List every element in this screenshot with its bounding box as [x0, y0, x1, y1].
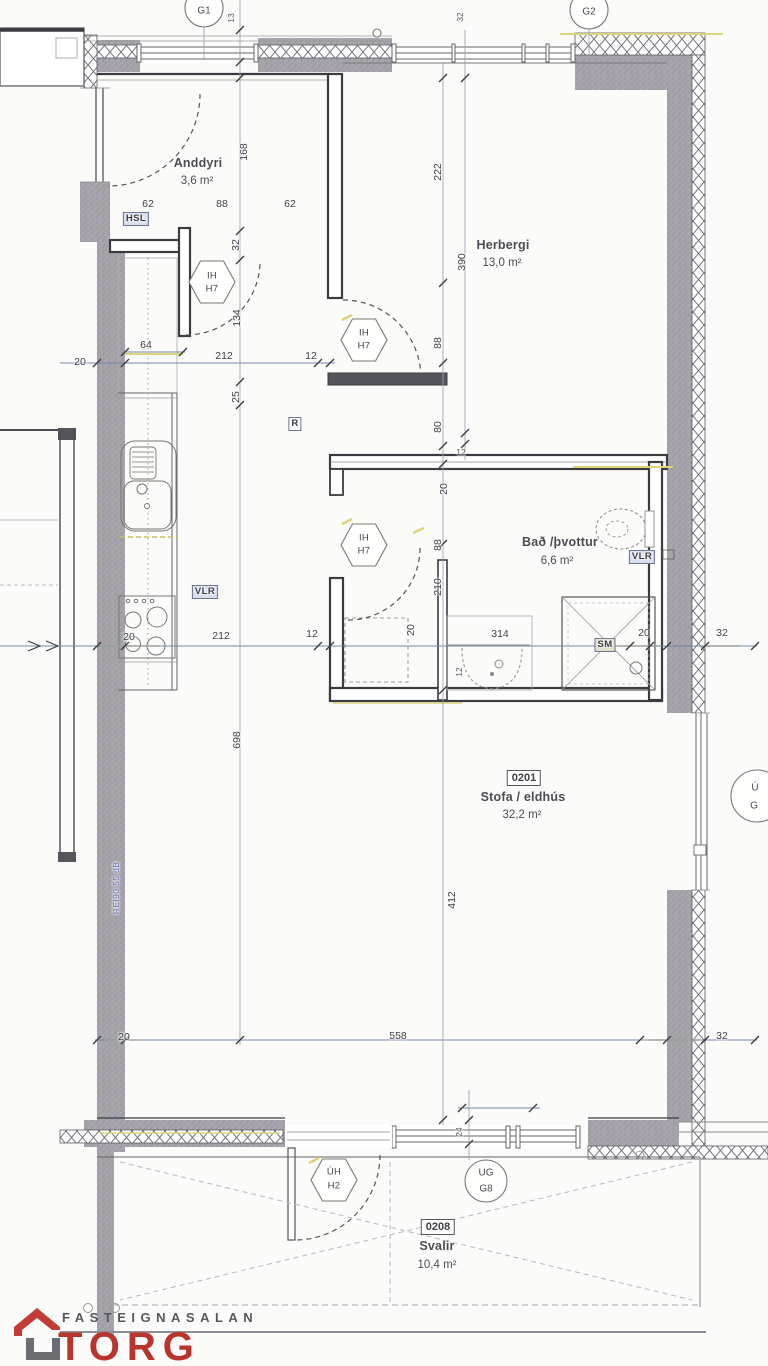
- unit-id-svalir: 0208: [421, 1219, 455, 1235]
- door-tag-text: H7: [358, 341, 371, 352]
- grid-label-g2: G2: [582, 7, 595, 18]
- dim-label: 20: [638, 627, 650, 639]
- dim-label: 64: [140, 339, 152, 351]
- window-tag-partial-text: G: [750, 801, 758, 812]
- dim-label: 13: [226, 13, 236, 22]
- dim-label: 12: [454, 667, 464, 676]
- bathroom-fixtures: [345, 509, 674, 690]
- wall-sound-rating-note: REI90 55 dB: [111, 862, 121, 915]
- washbasin: [447, 616, 532, 690]
- window-top-2: [392, 44, 575, 62]
- kitchen-sink: [121, 441, 176, 531]
- window-tag-text: G8: [479, 1184, 492, 1195]
- entry-door-arc: [108, 94, 200, 186]
- small-marker-circle: [373, 29, 381, 37]
- dim-label: 12: [456, 447, 465, 457]
- room-name-svalir: Svalir: [419, 1239, 454, 1253]
- door-tag-text: H7: [206, 284, 219, 295]
- dim-label: 134: [231, 309, 243, 327]
- door-tag-text: H2: [328, 1181, 341, 1192]
- dim-label: 32: [230, 239, 242, 251]
- dim-label: 212: [212, 630, 230, 642]
- room-name-anddyri: Anddyri: [174, 156, 223, 170]
- fixture-tag-vlr-kitchen: VLR: [192, 585, 218, 599]
- kitchen-fixtures: [118, 258, 177, 690]
- door-tag-text: IH: [207, 271, 217, 282]
- washing-machine: [345, 618, 408, 682]
- dim-label: 32: [716, 627, 728, 639]
- dim-label: 80: [432, 421, 444, 433]
- dim-label: 32: [716, 1030, 728, 1042]
- dim-label: 212: [215, 350, 233, 362]
- fixture-tag-vlr-bath: VLR: [629, 550, 655, 564]
- dim-label: 88: [432, 539, 444, 551]
- dim-label: 168: [238, 143, 250, 161]
- kitchen-stove: [119, 596, 175, 658]
- grid-label-g1: G1: [197, 6, 210, 17]
- window-right: [693, 713, 710, 890]
- door-tag-text: ÚH: [327, 1167, 341, 1178]
- dim-label: 222: [432, 163, 444, 181]
- door-tag-text: H7: [358, 546, 371, 557]
- window-tag-text: UG: [479, 1168, 494, 1179]
- dim-label: 390: [456, 253, 468, 271]
- floor-plan-drawing: [0, 0, 768, 1366]
- dim-label: 32: [455, 12, 465, 21]
- agency-logo: FASTEIGNASALAN TORG: [6, 1288, 706, 1364]
- dim-label: 210: [432, 578, 444, 596]
- toilet: [596, 509, 654, 549]
- room-name-stofa: Stofa / eldhús: [481, 790, 566, 804]
- door-tag-hex-1: [189, 261, 235, 303]
- dim-label: 88: [216, 198, 228, 210]
- door-swing-arcs: [108, 94, 421, 1240]
- dim-label: 698: [231, 731, 243, 749]
- window-tag-circle-balcony: [465, 1160, 507, 1202]
- fixture-tag-r: R: [288, 417, 301, 431]
- room-area-herbergi: 13,0 m²: [483, 257, 522, 269]
- floor-plan-page: G1 G2 13 32 62 88 62 168 Anddyri 3,6 m² …: [0, 0, 768, 1366]
- dim-label: 558: [389, 1030, 407, 1042]
- room-area-svalir: 10,4 m²: [418, 1259, 457, 1271]
- door-tag-text: IH: [359, 533, 369, 544]
- room-area-anddyri: 3,6 m²: [181, 175, 214, 187]
- dim-label: 62: [142, 198, 154, 210]
- dim-label: 62: [284, 198, 296, 210]
- window-tag-partial-text: Ú: [751, 783, 758, 794]
- door-tag-text: IH: [359, 328, 369, 339]
- dim-label: 24: [454, 1127, 464, 1136]
- dim-label: 88: [432, 337, 444, 349]
- room-name-bath: Bað /þvottur: [522, 535, 598, 549]
- room-name-herbergi: Herbergi: [476, 238, 529, 252]
- room-area-stofa: 32,2 m²: [503, 809, 542, 821]
- unit-id-stofa: 0201: [507, 770, 541, 786]
- dim-label: 20: [438, 483, 450, 495]
- window-bottom: [392, 1126, 580, 1148]
- dim-label: 20: [118, 1031, 130, 1043]
- dim-label: 25: [230, 391, 242, 403]
- dim-label: 412: [446, 891, 458, 909]
- fixture-tag-sm: SM: [594, 638, 615, 652]
- fixture-tag-hsl: HSL: [123, 212, 149, 226]
- dim-label: 12: [306, 628, 318, 640]
- dim-label: 20: [123, 631, 135, 643]
- dim-label: 20: [405, 624, 417, 636]
- dim-label: 314: [491, 628, 509, 640]
- interior-walls: [97, 63, 700, 1157]
- dim-label: 20: [74, 356, 86, 368]
- logo-brand-top: FASTEIGNASALAN: [62, 1310, 258, 1325]
- window-tag-circle-partial: [731, 770, 768, 822]
- logo-brand-name: TORG: [58, 1328, 201, 1366]
- dim-label: 12: [305, 350, 317, 362]
- room-area-bath: 6,6 m²: [541, 555, 574, 567]
